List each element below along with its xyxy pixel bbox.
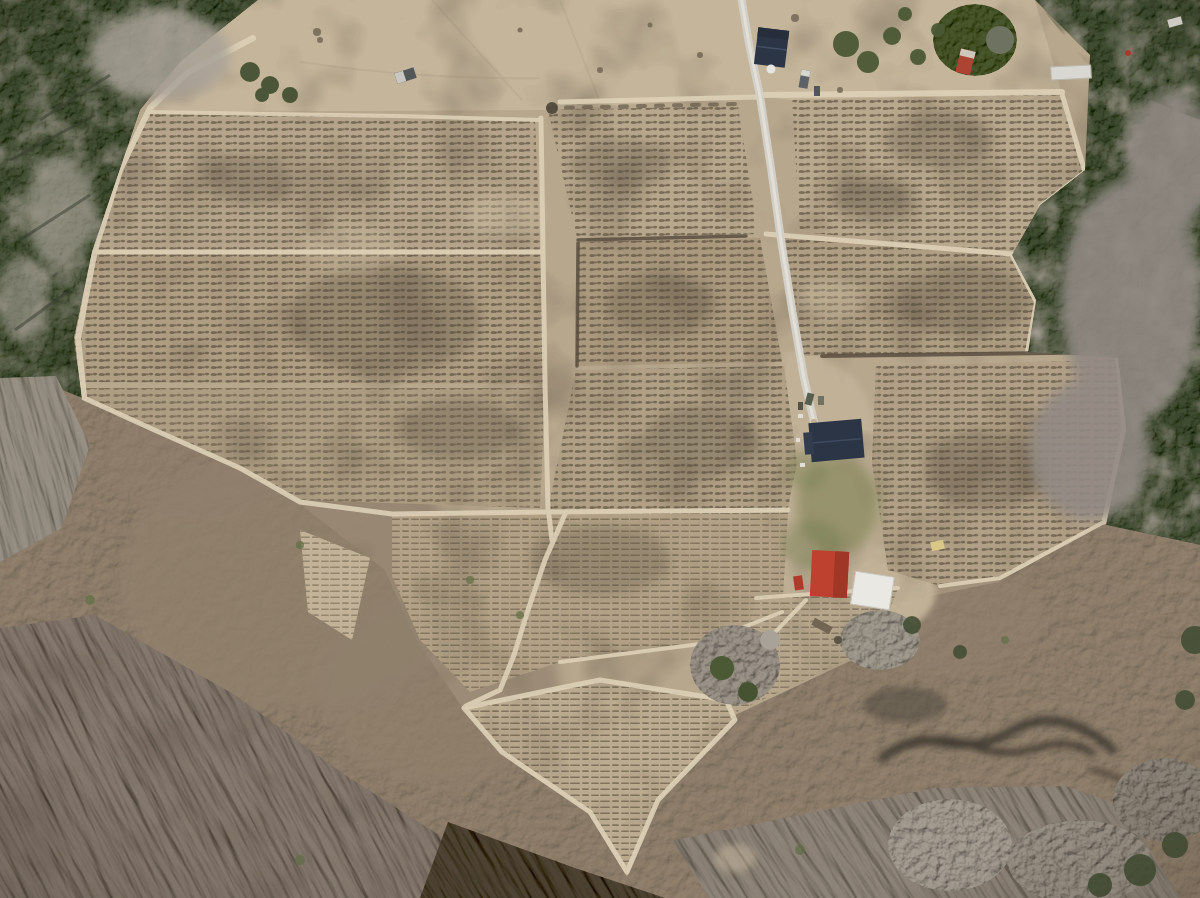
aerial-photo — [0, 0, 1200, 898]
aerial-photo-canvas — [0, 0, 1200, 898]
warm-haze — [0, 0, 1200, 898]
